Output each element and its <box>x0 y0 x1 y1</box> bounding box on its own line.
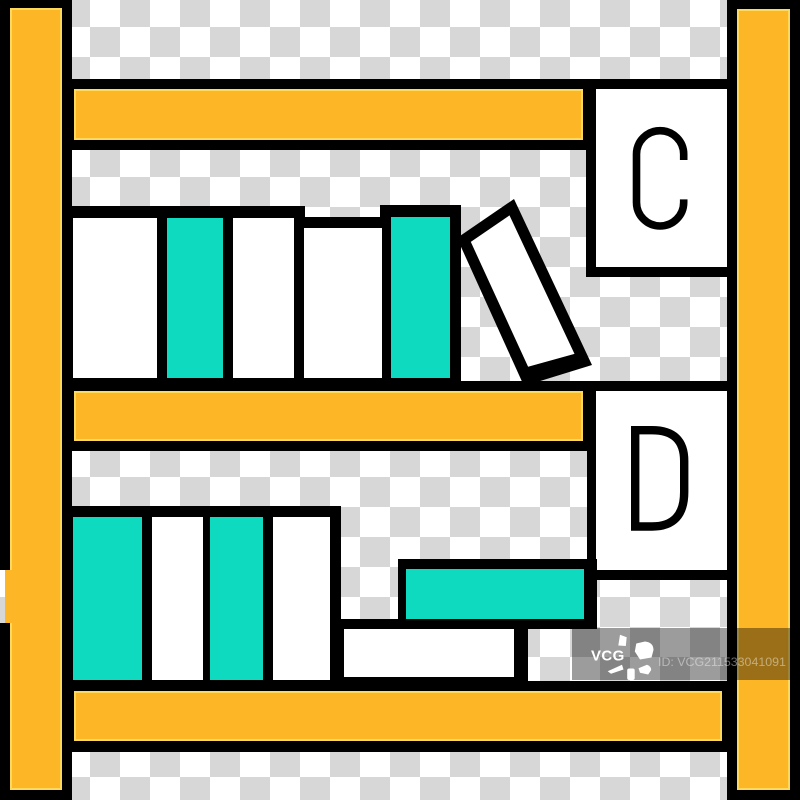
svg-text:ID: VCG211533041091: ID: VCG211533041091 <box>658 655 786 669</box>
svg-text:VCG: VCG <box>591 648 625 665</box>
